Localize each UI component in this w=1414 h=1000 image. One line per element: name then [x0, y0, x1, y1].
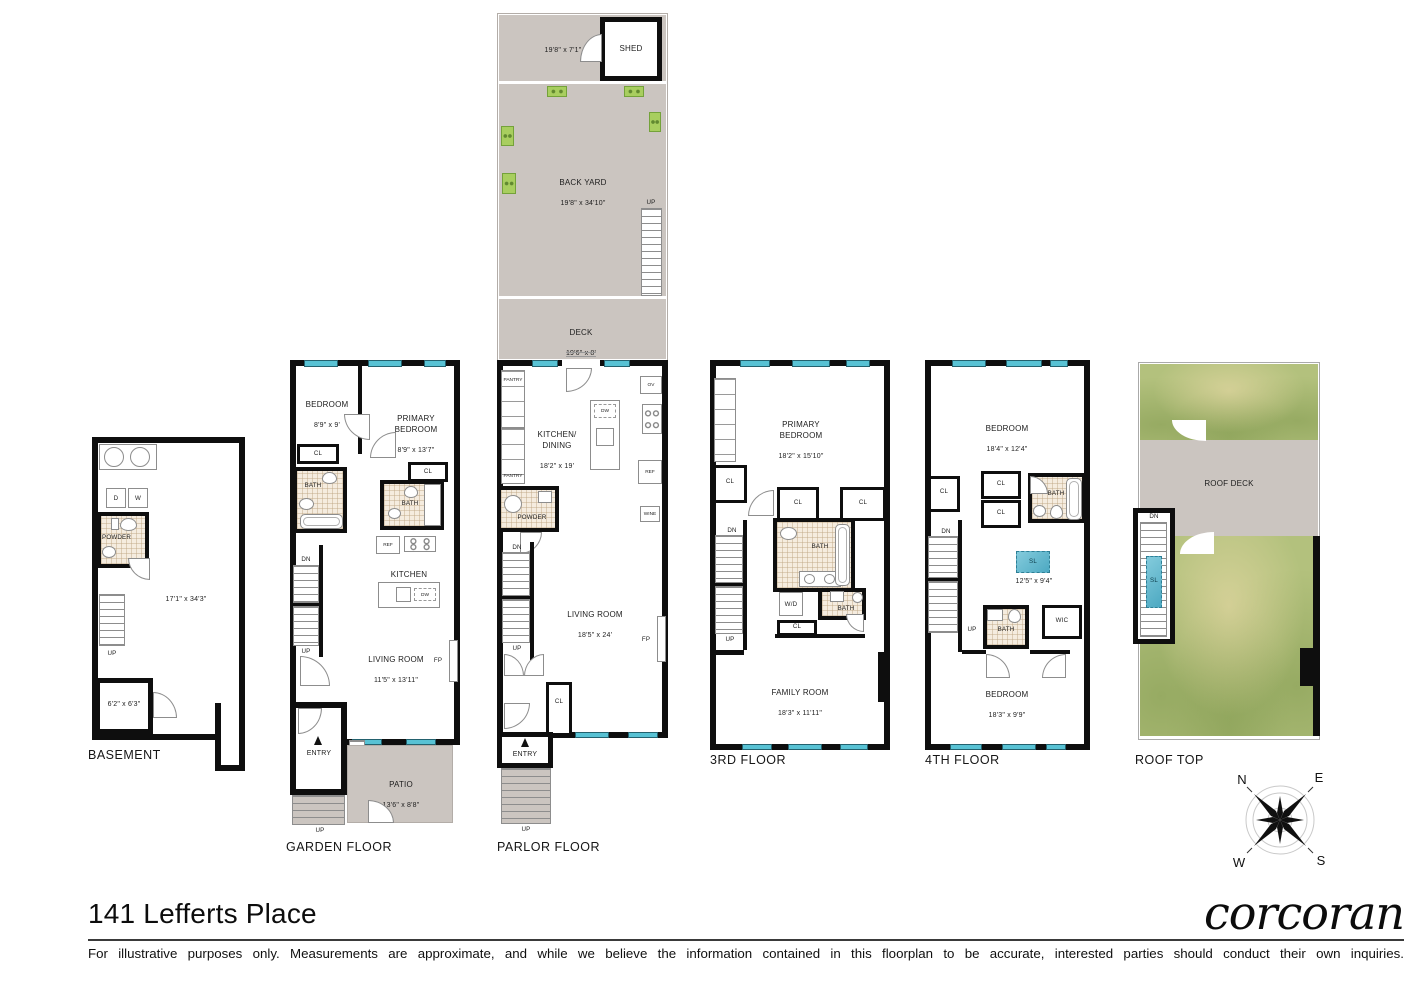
dishwasher-icon: DW	[594, 404, 616, 418]
cooktop-icon	[642, 404, 662, 434]
closet-label: CL	[981, 480, 1021, 488]
closet-label: CL	[928, 488, 960, 496]
toilet-tank-icon	[111, 518, 119, 530]
parlor-stoop-up-label: UP	[511, 826, 541, 834]
wic-label: WIC	[1042, 617, 1082, 625]
parlor-stairs-down	[502, 552, 530, 596]
roof-parapet-wall	[1313, 536, 1320, 736]
planter	[501, 126, 514, 146]
room-dims: 18'5" x 24'	[556, 631, 634, 640]
dishwasher-icon: DW	[414, 588, 436, 601]
room-name: KITCHEN	[380, 570, 438, 580]
basement-main-dims: 17'1" x 34'3"	[140, 595, 232, 604]
garden-stairs-down	[293, 565, 319, 603]
toilet-icon	[120, 518, 137, 531]
bath-label: BATH	[826, 605, 866, 613]
planter	[624, 86, 644, 97]
room-name: KITCHEN/ DINING	[526, 430, 588, 451]
fourth-up-label: UP	[960, 626, 984, 634]
window	[1050, 360, 1068, 367]
fridge-icon: REF	[376, 536, 400, 554]
basement-powder-label: POWDER	[99, 534, 147, 542]
roof-floor-label: ROOF TOP	[1135, 753, 1204, 767]
window	[742, 744, 772, 750]
basement-floor-label: BASEMENT	[88, 748, 161, 762]
third-primary-label: PRIMARY BEDROOM 18'2" x 15'10"	[770, 410, 832, 471]
window	[575, 732, 609, 738]
corcoran-logo: corcoran	[1204, 886, 1404, 940]
sink-icon	[299, 498, 314, 510]
room-name: PATIO	[364, 780, 438, 790]
washer-dryer-icon: W/D	[779, 592, 803, 616]
compass-s: S	[1317, 853, 1326, 868]
room-name: LIVING ROOM	[356, 655, 436, 665]
skylight-dims: 12'5" x 9'4"	[1008, 577, 1060, 586]
third-dn-label: DN	[718, 527, 746, 535]
stove-icon	[404, 536, 436, 552]
chimney-mass	[878, 652, 890, 702]
room-name: BEDROOM	[976, 424, 1038, 434]
room-name: PRIMARY BEDROOM	[770, 420, 832, 441]
window	[840, 744, 868, 750]
parlor-powder-label: POWDER	[510, 514, 554, 522]
window	[788, 744, 822, 750]
wine-fridge-icon: WINE	[640, 506, 660, 522]
laundry-sink	[130, 447, 150, 467]
third-up-label: UP	[716, 636, 744, 644]
basement-storage-dims: 6'2" x 6'3"	[100, 700, 148, 709]
compass-rose: N E W S	[1222, 768, 1338, 872]
third-family-label: FAMILY ROOM 18'3" x 11'11"	[758, 678, 842, 729]
room-name: LIVING ROOM	[556, 610, 634, 620]
fireplace-icon	[449, 640, 458, 682]
tub-icon	[1066, 478, 1082, 520]
yard-divider	[499, 81, 666, 84]
third-floor-label: 3RD FLOOR	[710, 753, 786, 767]
stair-wall	[743, 520, 747, 650]
garden-dn-label: DN	[293, 556, 319, 564]
room-name: DECK	[545, 328, 617, 338]
wardrobe-cabinet	[714, 378, 736, 462]
window	[1006, 360, 1042, 367]
sink-icon	[852, 592, 863, 603]
fireplace-label: FP	[428, 657, 448, 665]
roof-deck-label: ROOF DECK	[1190, 479, 1268, 489]
hall-wall	[716, 650, 744, 655]
roof-skylight-label: SL	[1142, 577, 1166, 585]
bedroom-wall	[962, 650, 986, 654]
fridge-icon: REF	[638, 460, 662, 484]
sink-icon	[504, 495, 522, 513]
stair-wall	[319, 545, 323, 657]
pantry-label: PANTRY	[501, 378, 525, 384]
washer: W	[128, 488, 148, 508]
garden-living-label: LIVING ROOM 11'5" x 13'11"	[356, 645, 436, 696]
compass-e: E	[1315, 770, 1324, 785]
vanity-icon	[987, 609, 1003, 621]
room-dims: 18'2" x 15'10"	[770, 452, 832, 461]
window	[1002, 744, 1036, 750]
entry-arrow	[521, 738, 529, 747]
window	[1046, 744, 1066, 750]
garden-stoop-up-label: UP	[305, 827, 335, 835]
parlor-kitchen-label: KITCHEN/ DINING 18'2" x 19'	[526, 420, 588, 481]
window	[950, 744, 982, 750]
fourth-bedroom-bottom-label: BEDROOM 18'3" x 9'9"	[976, 680, 1038, 731]
window	[604, 360, 630, 367]
backyard-up-label: UP	[640, 199, 662, 207]
parlor-living-label: LIVING ROOM 18'5" x 24'	[556, 600, 634, 651]
planter	[547, 86, 567, 97]
shower-icon	[424, 484, 441, 526]
sink-icon	[824, 574, 835, 584]
window	[424, 360, 446, 367]
bath-label: BATH	[986, 626, 1026, 634]
planter	[502, 173, 516, 194]
parlor-stairs-up	[502, 599, 530, 643]
room-dims: 18'3" x 9'9"	[976, 711, 1038, 720]
fourth-stairs-up	[928, 581, 958, 633]
basement-up-label: UP	[99, 650, 125, 658]
window	[368, 360, 402, 367]
garden-entry-label: ENTRY	[298, 749, 340, 758]
compass-w: W	[1233, 855, 1246, 870]
entry-arrow	[314, 736, 322, 745]
roof-dn-label: DN	[1140, 513, 1168, 521]
family-room-wall	[775, 634, 865, 638]
room-dims: 18'2" x 19'	[526, 462, 588, 471]
closet-label: CL	[546, 698, 572, 706]
room-name: BACK YARD	[540, 178, 626, 188]
garden-up-label: UP	[293, 648, 319, 656]
toilet-icon	[1008, 609, 1021, 623]
third-stairs-up	[715, 586, 743, 634]
bath-label: BATH	[800, 543, 840, 551]
deck-divider	[499, 296, 666, 299]
vanity-icon	[830, 591, 844, 602]
green-roof-top	[1140, 364, 1318, 440]
skylight-label: SL	[1016, 558, 1050, 566]
third-stairs-down	[715, 535, 743, 583]
page-title: 141 Lefferts Place	[88, 898, 317, 930]
dryer: D	[106, 488, 126, 508]
shed-label: SHED	[605, 44, 657, 54]
stair-wall	[958, 520, 962, 652]
room-dims: 19'8" x 34'10"	[540, 199, 626, 208]
fourth-stairs-down	[928, 536, 958, 578]
sink-icon	[804, 574, 815, 584]
disclaimer-text: For illustrative purposes only. Measurem…	[88, 946, 1404, 961]
closet-label: CL	[408, 468, 448, 476]
oven-icon: OV	[640, 376, 662, 394]
window	[952, 360, 986, 367]
fireplace-icon	[657, 616, 666, 662]
parlor-closet	[546, 682, 572, 736]
window	[304, 360, 338, 367]
room-dims: 18'3" x 11'11"	[758, 709, 842, 718]
closet-label: CL	[713, 478, 747, 486]
sink-icon	[1033, 505, 1046, 517]
parlor-stoop-stairs	[501, 768, 551, 824]
room-name: BEDROOM	[976, 690, 1038, 700]
closet-label: CL	[297, 450, 339, 458]
backyard-label: BACK YARD 19'8" x 34'10"	[540, 168, 626, 219]
parlor-up-label: UP	[503, 645, 531, 653]
room-dims: 11'5" x 13'11"	[356, 676, 436, 685]
island-sink-icon	[396, 587, 411, 602]
pantry-label: PANTRY	[501, 474, 525, 480]
toilet-icon	[1050, 505, 1063, 519]
rear-step	[566, 352, 596, 357]
backyard-stairs	[641, 208, 662, 296]
garden-floor-label: GARDEN FLOOR	[286, 840, 392, 854]
room-name: BEDROOM	[298, 400, 356, 410]
window	[628, 732, 658, 738]
laundry-sink	[104, 447, 124, 467]
rear-door-gap	[562, 359, 600, 368]
garden-stoop-stairs	[292, 795, 345, 825]
fourth-dn-label: DN	[932, 528, 960, 536]
closet-label: CL	[777, 499, 819, 507]
parlor-entry-label: ENTRY	[504, 750, 546, 759]
corner-sink-icon	[538, 491, 552, 503]
planter	[649, 112, 661, 132]
footer-divider	[88, 939, 1404, 941]
parlor-dn-label: DN	[503, 544, 531, 552]
floorplan-canvas: SHED 19'8" x 7'1" BACK YARD 19'8" x 34'1…	[0, 0, 1414, 1000]
window	[792, 360, 830, 367]
toilet-icon	[322, 472, 337, 484]
fourth-floor-label: 4TH FLOOR	[925, 753, 1000, 767]
fireplace-label: FP	[636, 636, 656, 644]
sink-icon	[102, 546, 116, 558]
basement-join-patch	[221, 703, 239, 761]
shed-yard-dims: 19'8" x 7'1"	[528, 46, 598, 55]
closet-label: CL	[777, 623, 817, 631]
room-name: FAMILY ROOM	[758, 688, 842, 698]
tub-icon	[300, 514, 343, 529]
compass-n: N	[1237, 772, 1246, 787]
roof-chimney	[1300, 648, 1318, 686]
stair-wall	[530, 542, 534, 660]
closet-label: CL	[981, 509, 1021, 517]
basement-stairs	[99, 594, 125, 646]
island-sink-icon	[596, 428, 614, 446]
window	[846, 360, 870, 367]
tub-icon	[835, 524, 850, 586]
room-dims: 18'4" x 12'4"	[976, 445, 1038, 454]
window	[740, 360, 770, 367]
bath-label: BATH	[392, 500, 428, 508]
closet-label: CL	[840, 499, 886, 507]
sink-icon	[780, 527, 797, 540]
garden-stairs-up	[293, 606, 319, 646]
sink-icon	[388, 508, 401, 519]
window	[532, 360, 558, 367]
fourth-bedroom-top-label: BEDROOM 18'4" x 12'4"	[976, 414, 1038, 465]
toilet-icon	[404, 486, 418, 498]
bedroom-partition-wall	[358, 366, 362, 454]
parlor-floor-label: PARLOR FLOOR	[497, 840, 600, 854]
